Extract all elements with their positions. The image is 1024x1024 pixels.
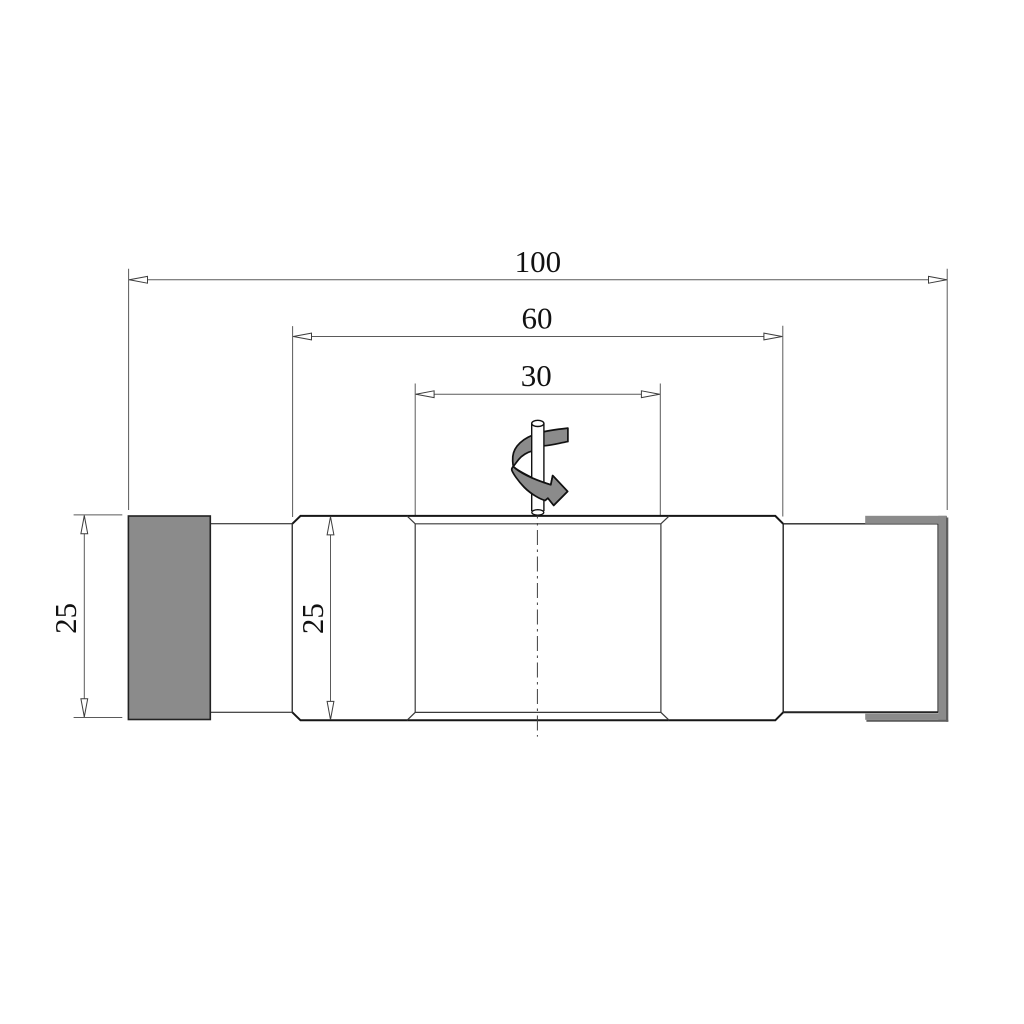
svg-text:100: 100 bbox=[515, 244, 562, 279]
svg-text:30: 30 bbox=[521, 358, 552, 393]
svg-text:25: 25 bbox=[295, 603, 330, 634]
svg-text:25: 25 bbox=[48, 603, 83, 634]
svg-text:60: 60 bbox=[522, 300, 553, 335]
